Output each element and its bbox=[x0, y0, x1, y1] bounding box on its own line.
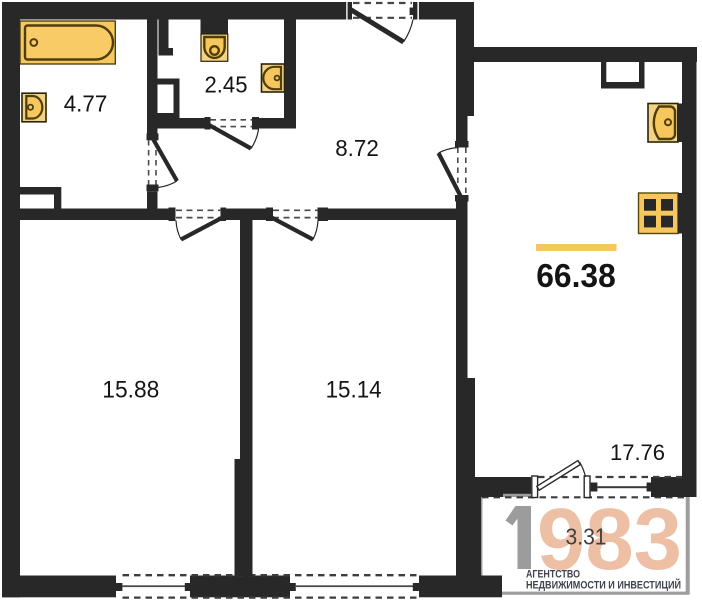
svg-text:66.38: 66.38 bbox=[536, 257, 616, 294]
svg-text:15.14: 15.14 bbox=[326, 376, 382, 403]
svg-text:4.77: 4.77 bbox=[64, 91, 108, 117]
svg-text:2.45: 2.45 bbox=[205, 71, 248, 97]
svg-text:17.76: 17.76 bbox=[610, 440, 665, 465]
svg-text:НЕДВИЖИМОСТИ И ИНВЕСТИЦИЙ: НЕДВИЖИМОСТИ И ИНВЕСТИЦИЙ bbox=[526, 579, 681, 592]
svg-text:15.88: 15.88 bbox=[102, 377, 159, 404]
svg-text:3.31: 3.31 bbox=[566, 524, 607, 550]
svg-text:8.72: 8.72 bbox=[335, 135, 379, 161]
